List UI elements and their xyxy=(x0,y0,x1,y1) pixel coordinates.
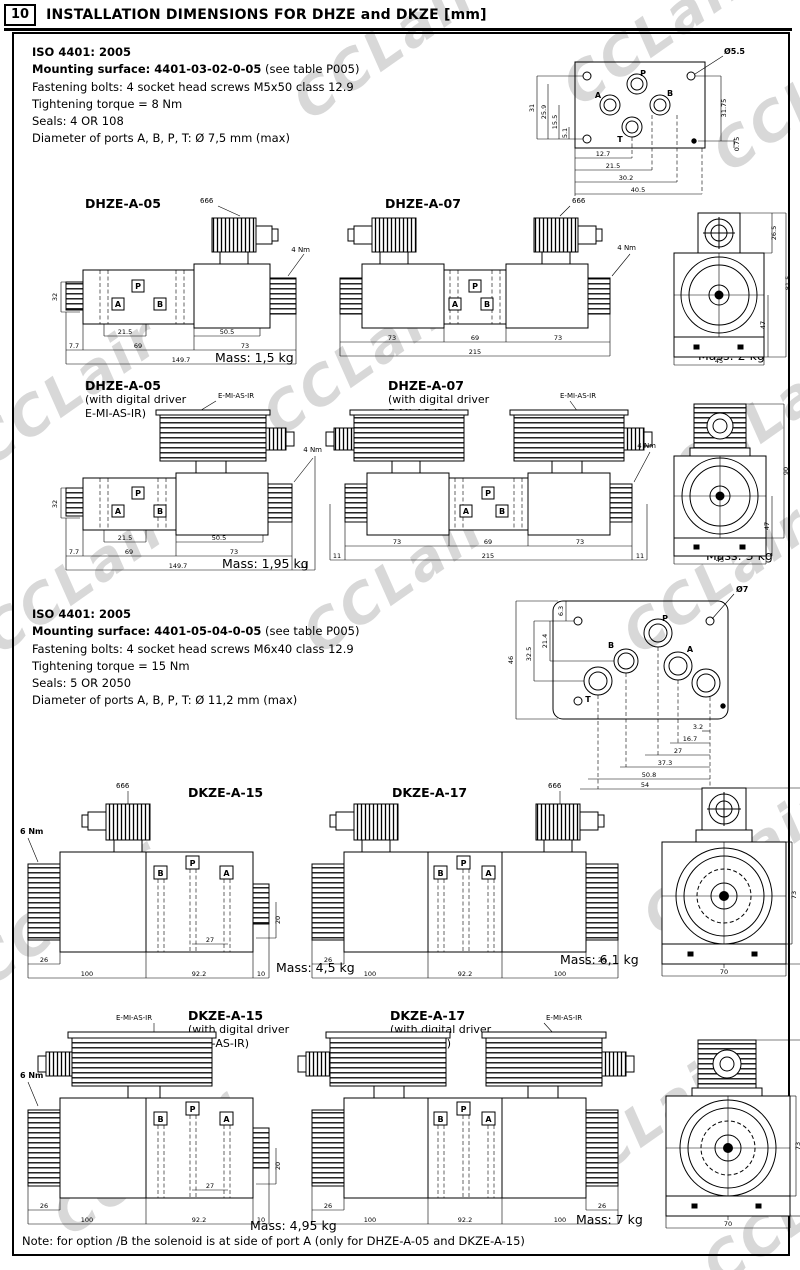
dim-label: 73 xyxy=(388,334,396,342)
port-label-p: P xyxy=(190,859,196,868)
torque-label: 4 Nm xyxy=(617,244,636,252)
port-label-b: B xyxy=(157,507,163,516)
port-label-a: A xyxy=(115,300,122,309)
driver-label: E-MI-AS-IR xyxy=(560,392,596,400)
datasheet-page: CCLair CCLair CCLair CCLair CCLair CCLai… xyxy=(0,0,800,1270)
torque-label: 6 Nm xyxy=(20,1071,43,1080)
port-label-a: A xyxy=(223,1115,230,1124)
port-label-a: A xyxy=(595,91,602,100)
spec-ports: Diameter of ports A, B, P, T: Ø 7,5 mm (… xyxy=(32,130,462,147)
spec-mounting-ref: (see table P005) xyxy=(261,62,359,76)
mass-dhze-a-05-driver: Mass: 1,95 kg xyxy=(222,556,309,571)
torque-arrow xyxy=(28,1082,38,1106)
dim-label: 30.2 xyxy=(619,174,633,182)
port-label-b: B xyxy=(157,300,163,309)
dhze-driver-end-view-drawing: 90 47 45 xyxy=(648,396,798,571)
dim-label: 3.2 xyxy=(693,723,703,731)
port-label-a: A xyxy=(687,645,694,654)
spec-bolts: Fastening bolts: 4 socket head screws M5… xyxy=(32,79,462,96)
port-label-p: P xyxy=(135,282,141,291)
driver-label: E-MI-AS-IR xyxy=(546,1014,582,1022)
torque-label: 4 Nm xyxy=(303,446,322,454)
dkze-a-15-drawing: 666 6 Nm B P A xyxy=(8,776,308,994)
spec-ports: Diameter of ports A, B, P, T: Ø 11,2 mm … xyxy=(32,692,472,709)
connectors xyxy=(330,804,604,852)
dim-label: 69 xyxy=(125,548,133,556)
spec-block-iso4401-05: ISO 4401: 2005 Mounting surface: 4401-05… xyxy=(32,606,472,710)
dim-label: 47 xyxy=(759,321,767,329)
port-label-a: A xyxy=(485,1115,492,1124)
dim-label: 100 xyxy=(364,970,376,978)
dim-hole-dia: Ø7 xyxy=(736,584,748,594)
dim-label: 215 xyxy=(469,348,481,356)
dim-label: 69 xyxy=(471,334,479,342)
mounting-surface-drawing-03: Ø5.5 P A B T 31 25.9 15.5 5.1 31.75 0.75… xyxy=(480,40,790,210)
dim-label: 50.5 xyxy=(220,328,234,336)
dim-label: 50.8 xyxy=(642,771,656,779)
dim-label: 92.2 xyxy=(192,970,206,978)
digital-driver xyxy=(156,410,294,473)
section-number: 10 xyxy=(4,4,36,26)
dim-label: 100 xyxy=(81,970,93,978)
torque-arrow xyxy=(612,254,630,276)
connector-code-label: 666 xyxy=(548,782,562,790)
dim-label: 7.7 xyxy=(69,548,79,556)
dim-label: 21.4 xyxy=(541,634,549,648)
dim-label: 16.7 xyxy=(683,735,697,743)
port-label-p: P xyxy=(485,489,491,498)
dim-label: 11 xyxy=(636,552,644,560)
port-label-p: P xyxy=(190,1105,196,1114)
page-title: INSTALLATION DIMENSIONS FOR DHZE and DKZ… xyxy=(46,7,487,23)
port-label-b: B xyxy=(437,1115,443,1124)
dkze-a-15-driver-drawing: E-MI-AS-IR 6 Nm B P A xyxy=(8,1006,308,1236)
dim-label: 50.5 xyxy=(212,534,226,542)
dim-label: 45 xyxy=(715,357,723,365)
port-label-b: B xyxy=(499,507,505,516)
spec-torque: Tightening torque = 8 Nm xyxy=(32,96,462,113)
valve-assembly xyxy=(13,1098,293,1198)
dim-label: 73 xyxy=(794,1142,800,1150)
dim-label: 100 xyxy=(554,970,566,978)
port-label-t: T xyxy=(585,695,591,704)
dim-label: 73 xyxy=(393,538,401,546)
dimension-lines xyxy=(516,601,710,789)
end-view xyxy=(666,1040,790,1220)
port-label-b: B xyxy=(157,869,163,878)
dim-label: 11 xyxy=(333,552,341,560)
mass-dhze-a-05: Mass: 1,5 kg xyxy=(215,350,294,365)
dim-label: 10 xyxy=(257,970,265,978)
port-label-a: A xyxy=(452,300,459,309)
driver-label: E-MI-AS-IR xyxy=(116,1014,152,1022)
dim-label: 73 xyxy=(790,891,798,899)
port-label-p: P xyxy=(461,1105,467,1114)
dim-label: 26 xyxy=(40,1202,48,1210)
dhze-a-07-drawing: 666 P A B 4 Nm xyxy=(322,192,642,377)
dim-label: 47 xyxy=(763,522,771,530)
valve-assembly xyxy=(13,852,293,952)
dim-label: 27 xyxy=(674,747,682,755)
valve-assembly xyxy=(58,473,320,535)
spec-mounting-code: Mounting surface: 4401-03-02-0-05 xyxy=(32,62,261,76)
dim-label: 32.5 xyxy=(525,647,533,661)
mounting-surface-drawing-05: Ø7 P B A T 6.3 21.4 32.5 46 3.2 16.7 27 … xyxy=(478,576,793,791)
connector-666 xyxy=(82,804,150,852)
connectors xyxy=(348,218,602,264)
port-label-p: P xyxy=(472,282,478,291)
connector-code-label: 666 xyxy=(572,197,586,205)
torque-label: 6 Nm xyxy=(20,827,43,836)
port-label-p: P xyxy=(662,614,668,623)
dim-label: 73 xyxy=(241,342,249,350)
port-label-t: T xyxy=(617,135,623,144)
torque-arrow xyxy=(288,254,304,276)
dkze-end-view-drawing: 105.5 73 70 xyxy=(640,780,800,985)
dim-label: 70 xyxy=(720,968,728,976)
valve-assembly xyxy=(330,473,650,535)
dim-label: 0.75 xyxy=(733,137,741,151)
connector-666 xyxy=(212,218,278,264)
connector-code-label: 666 xyxy=(116,782,130,790)
torque-arrow xyxy=(28,838,38,862)
dim-label: 26 xyxy=(324,956,332,964)
dim-label: 100 xyxy=(364,1216,376,1224)
spec-seals: Seals: 4 OR 108 xyxy=(32,113,462,130)
dim-label: 32 xyxy=(51,500,59,508)
dim-label: 73 xyxy=(576,538,584,546)
hole-callout-leader xyxy=(712,594,734,619)
dkze-a-17-driver-drawing: E-MI-AS-IR B P A xyxy=(296,1006,640,1236)
mass-dkze-a-17-driver: Mass: 7 kg xyxy=(576,1212,643,1227)
dim-label: 26 xyxy=(598,1202,606,1210)
spec-iso: ISO 4401: 2005 xyxy=(32,44,462,61)
dkze-driver-end-view-drawing: 114 73 70 xyxy=(642,1032,800,1244)
footnote: Note: for option /B the solenoid is at s… xyxy=(22,1234,525,1248)
dim-label: 92.2 xyxy=(458,1216,472,1224)
dim-label: 20 xyxy=(274,916,282,924)
port-label-b: B xyxy=(667,89,673,98)
dim-label: 31.75 xyxy=(720,99,728,118)
spec-block-iso4401-03: ISO 4401: 2005 Mounting surface: 4401-03… xyxy=(32,44,462,148)
dim-label: 100 xyxy=(81,1216,93,1224)
end-view xyxy=(674,213,764,360)
dim-label: 149.7 xyxy=(169,562,188,570)
leader-line xyxy=(560,206,570,216)
spec-torque: Tightening torque = 15 Nm xyxy=(32,658,472,675)
port-label-b: B xyxy=(608,641,614,650)
dim-label: 27 xyxy=(206,1182,214,1190)
dhze-a-07-driver-drawing: E-MI-AS-IR P A B 4 Nm xyxy=(322,386,657,586)
spec-mounting-ref: (see table P005) xyxy=(261,624,359,638)
valve-assembly xyxy=(58,264,313,328)
dim-label: 15.5 xyxy=(551,115,559,129)
port-label-a: A xyxy=(463,507,470,516)
port-label-b: B xyxy=(484,300,490,309)
dim-label: 37.3 xyxy=(658,759,672,767)
dim-label: 25.9 xyxy=(540,105,548,119)
dim-label: 32 xyxy=(51,293,59,301)
page-header: 10 INSTALLATION DIMENSIONS FOR DHZE and … xyxy=(4,2,792,31)
spec-mounting: Mounting surface: 4401-03-02-0-05 (see t… xyxy=(32,61,462,78)
end-view xyxy=(674,404,766,559)
dim-label: 5.1 xyxy=(561,128,569,138)
torque-arrow xyxy=(294,458,313,482)
dim-label: 46 xyxy=(507,656,515,664)
dim-label: 7.7 xyxy=(69,342,79,350)
dim-label: 92.2 xyxy=(192,1216,206,1224)
digital-driver xyxy=(38,1032,216,1098)
leader-line xyxy=(218,206,240,216)
spec-seals: Seals: 5 OR 2050 xyxy=(32,675,472,692)
dim-label: 70 xyxy=(724,1220,732,1228)
dim-label: 20 xyxy=(274,1162,282,1170)
dim-label: 21.5 xyxy=(118,534,132,542)
dim-label: 6.3 xyxy=(557,606,565,616)
dim-hole-dia: Ø5.5 xyxy=(724,46,745,56)
mounting-plate xyxy=(553,601,728,719)
dim-label: 81.5 xyxy=(784,276,792,290)
dim-label: 73 xyxy=(554,334,562,342)
dim-label: 215 xyxy=(482,552,494,560)
torque-label: 4 Nm xyxy=(291,246,310,254)
dim-label: 90 xyxy=(782,467,790,475)
dim-label: 69 xyxy=(134,342,142,350)
valve-assembly xyxy=(332,264,627,328)
dim-label: 21.5 xyxy=(606,162,620,170)
dim-label: 69 xyxy=(484,538,492,546)
port-label-a: A xyxy=(115,507,122,516)
dim-label: 92.2 xyxy=(458,970,472,978)
dim-label: 26 xyxy=(324,1202,332,1210)
dim-label: 73 xyxy=(230,548,238,556)
port-label-p: P xyxy=(640,69,646,78)
hole-callout-leader xyxy=(695,56,723,74)
driver-label: E-MI-AS-IR xyxy=(218,392,254,400)
digital-drivers xyxy=(326,410,652,473)
spec-bolts: Fastening bolts: 4 socket head screws M6… xyxy=(32,641,472,658)
dim-label: 45 xyxy=(716,556,724,564)
spec-mounting-code: Mounting surface: 4401-05-04-0-05 xyxy=(32,624,261,638)
digital-drivers xyxy=(298,1032,634,1098)
port-label-a: A xyxy=(223,869,230,878)
port-label-p: P xyxy=(135,489,141,498)
port-label-b: B xyxy=(437,869,443,878)
dhze-end-view-drawing: 26.5 81.5 47 45 xyxy=(648,205,798,373)
dim-label: 26.5 xyxy=(770,226,778,240)
dim-label: 12.7 xyxy=(596,150,610,158)
mass-dkze-a-17: Mass: 6,1 kg xyxy=(560,952,639,967)
dim-label: 31 xyxy=(528,104,536,112)
connector-code-label: 666 xyxy=(200,197,214,205)
dim-label: 21.5 xyxy=(118,328,132,336)
dim-label: 27 xyxy=(206,936,214,944)
port-label-b: B xyxy=(157,1115,163,1124)
port-label-a: A xyxy=(485,869,492,878)
port-label-p: P xyxy=(461,859,467,868)
dim-label: 100 xyxy=(554,1216,566,1224)
spec-mounting: Mounting surface: 4401-05-04-0-05 (see t… xyxy=(32,623,472,640)
dim-label: 26 xyxy=(40,956,48,964)
spec-iso: ISO 4401: 2005 xyxy=(32,606,472,623)
end-view xyxy=(662,788,786,968)
dim-label: 149.7 xyxy=(172,356,191,364)
